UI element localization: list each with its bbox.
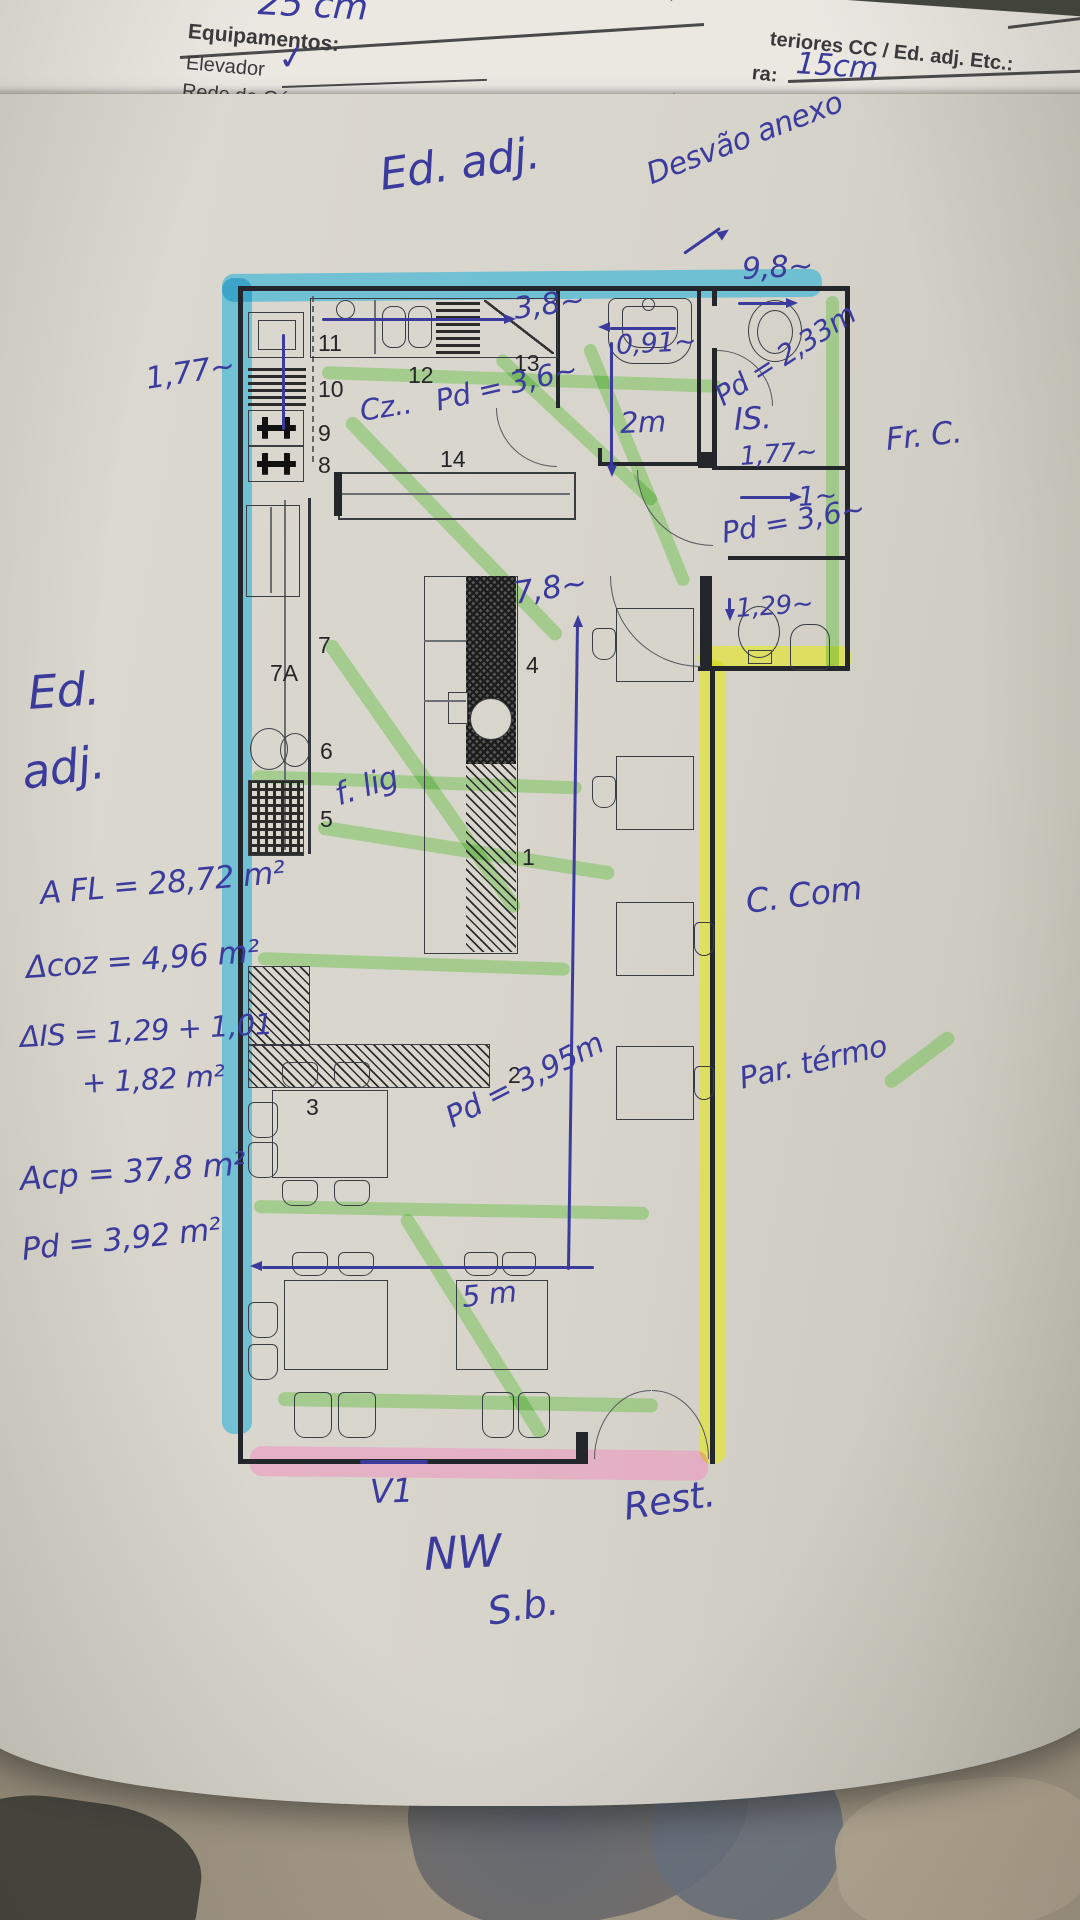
note-c-com: C. Com	[744, 868, 864, 921]
partition-line	[308, 498, 311, 854]
v1-underline-dash	[360, 1460, 428, 1464]
sink-bowl-icon	[382, 306, 406, 348]
note-par-termo: Par. térmo	[736, 1029, 890, 1097]
grate-appliance-icon	[248, 780, 304, 856]
chair	[292, 1252, 328, 1276]
dim-1-29: 1,29~	[735, 589, 814, 624]
photo-of-annotated-floorplan: 25 cm Equipamentos: Elevador ✓ Rede de G…	[0, 0, 1080, 1920]
room-number: 9	[318, 420, 331, 447]
chair	[248, 1102, 278, 1138]
appliance-icon	[248, 410, 304, 446]
note-v1: V1	[369, 1471, 413, 1511]
chair	[338, 1252, 374, 1276]
wall	[697, 286, 701, 466]
chair	[248, 1142, 278, 1178]
note-rest: Rest.	[621, 1472, 718, 1529]
measure-line-3-8	[322, 318, 506, 321]
note-desvao-anexo: Desvão anexo	[642, 85, 848, 192]
door-arc	[637, 470, 713, 546]
desvao-arrow-line	[683, 227, 721, 255]
room-number: 1	[522, 844, 535, 871]
dim-9-8: 9,8~	[741, 248, 814, 287]
formula-pd-total: Pd = 3,92 m²	[20, 1211, 222, 1268]
wall	[712, 286, 717, 306]
vent-appliance-icon	[248, 364, 306, 406]
wall	[710, 666, 715, 1464]
toilet-base	[748, 650, 772, 664]
room-number: 7	[318, 632, 331, 659]
note-ed-left-2: adj.	[18, 735, 108, 800]
chair	[294, 1392, 332, 1438]
dim-7-8: 7,8~	[511, 565, 589, 612]
cabinet-line	[270, 507, 272, 593]
measure-line-7-8-vertical	[567, 624, 579, 1270]
chair	[592, 628, 616, 660]
formula-area-is-b: + 1,82 m²	[81, 1059, 225, 1100]
room-number: 12	[408, 362, 434, 389]
chair	[248, 1302, 278, 1338]
room-number: 14	[440, 446, 466, 473]
table	[616, 608, 694, 682]
shelf-line	[424, 640, 466, 642]
green-dash-par-termo	[882, 1029, 958, 1091]
chair	[464, 1252, 498, 1276]
table	[616, 756, 694, 830]
note-cz: Cz..	[357, 386, 414, 428]
table	[616, 1046, 694, 1120]
room-number: 6	[320, 738, 333, 765]
arrowhead-left	[598, 322, 610, 332]
shelf-line	[424, 700, 466, 702]
chair	[282, 1180, 318, 1206]
dim-0-91: 0,91~	[615, 326, 697, 361]
wall	[845, 286, 850, 670]
sink-bowl-icon	[408, 306, 432, 348]
measure-line-2m	[610, 342, 613, 472]
note-fr-c: Fr. C.	[884, 414, 963, 458]
chair	[694, 922, 714, 956]
dim-5m: 5 m	[460, 1274, 518, 1314]
duct-small-box	[448, 692, 468, 724]
note-ed-left-1: Ed.	[26, 661, 101, 720]
note-sb: S.b.	[485, 1579, 561, 1633]
chair	[338, 1392, 376, 1438]
chair	[334, 1180, 370, 1206]
green-stroke	[278, 1392, 658, 1413]
tall-cabinet-icon	[246, 505, 300, 597]
bidet-icon	[790, 624, 830, 670]
door-jamb	[576, 1432, 588, 1464]
room-number: 10	[318, 376, 344, 403]
burner-icon	[336, 300, 355, 319]
wc-oval-icon	[280, 733, 310, 767]
note-ed-adj-top: Ed. adj.	[376, 128, 542, 201]
fridge-inner	[258, 320, 296, 350]
door-arc	[496, 408, 557, 467]
chair	[518, 1392, 550, 1438]
chair	[334, 1062, 370, 1088]
table	[284, 1280, 388, 1370]
island-midline	[340, 493, 570, 495]
room-number: 7A	[270, 660, 298, 687]
chair	[502, 1252, 536, 1276]
wall	[700, 576, 712, 668]
arrowhead-up	[573, 615, 583, 627]
counter-divider	[374, 300, 376, 354]
hatched-column	[466, 764, 516, 952]
faucet-icon	[642, 298, 655, 311]
chair	[482, 1392, 514, 1438]
room-number: 5	[320, 806, 333, 833]
duct-circle	[470, 698, 512, 740]
dim-2m: 2m	[619, 404, 666, 440]
island-end-cap	[334, 472, 342, 516]
appliance-icon	[248, 446, 304, 482]
arrowhead-right	[786, 298, 798, 308]
plan-content: 11 12 13 10 9 8 14 7 7A 6 5 4 1 2 3	[0, 0, 1080, 1920]
grill-appliance-icon	[436, 300, 480, 354]
fridge-leader-line	[282, 334, 285, 430]
arrow-line-1m	[740, 496, 794, 499]
arrowhead-down	[607, 465, 617, 477]
kitchen-island-counter	[338, 472, 576, 520]
formula-area-cp: Acp = 37,8 m²	[19, 1144, 247, 1198]
chair	[282, 1062, 318, 1088]
wall	[728, 556, 845, 560]
dim-1-77-is: 1,77~	[739, 437, 818, 472]
label-is: IS.	[733, 400, 772, 438]
note-nw: NW	[423, 1524, 503, 1581]
chair	[248, 1344, 278, 1380]
table	[616, 902, 694, 976]
entry-arrow-line	[738, 302, 790, 305]
room-number: 3	[306, 1094, 319, 1121]
table	[272, 1090, 388, 1178]
note-f-lig: f. lig	[330, 759, 402, 813]
room-number: 11	[318, 330, 342, 357]
chair	[694, 1066, 714, 1100]
chair	[592, 776, 616, 808]
wall	[698, 452, 714, 468]
arrowhead-down	[725, 609, 735, 621]
room-number: 8	[318, 452, 331, 479]
room-number: 4	[526, 652, 539, 679]
wall	[598, 448, 602, 466]
arrowhead-left	[250, 1261, 262, 1271]
measure-line-5m	[262, 1266, 594, 1269]
